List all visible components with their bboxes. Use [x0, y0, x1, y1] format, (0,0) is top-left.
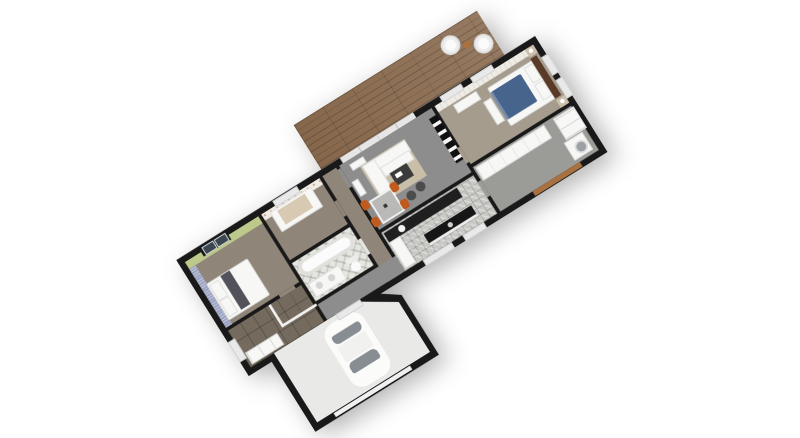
lamp [559, 98, 565, 104]
lamp [528, 48, 534, 54]
floor-plan-canvas [0, 0, 800, 438]
floor-plan [149, 0, 663, 438]
magazine [395, 171, 403, 179]
table-decor [383, 203, 388, 208]
kitchen-sink [397, 224, 407, 234]
